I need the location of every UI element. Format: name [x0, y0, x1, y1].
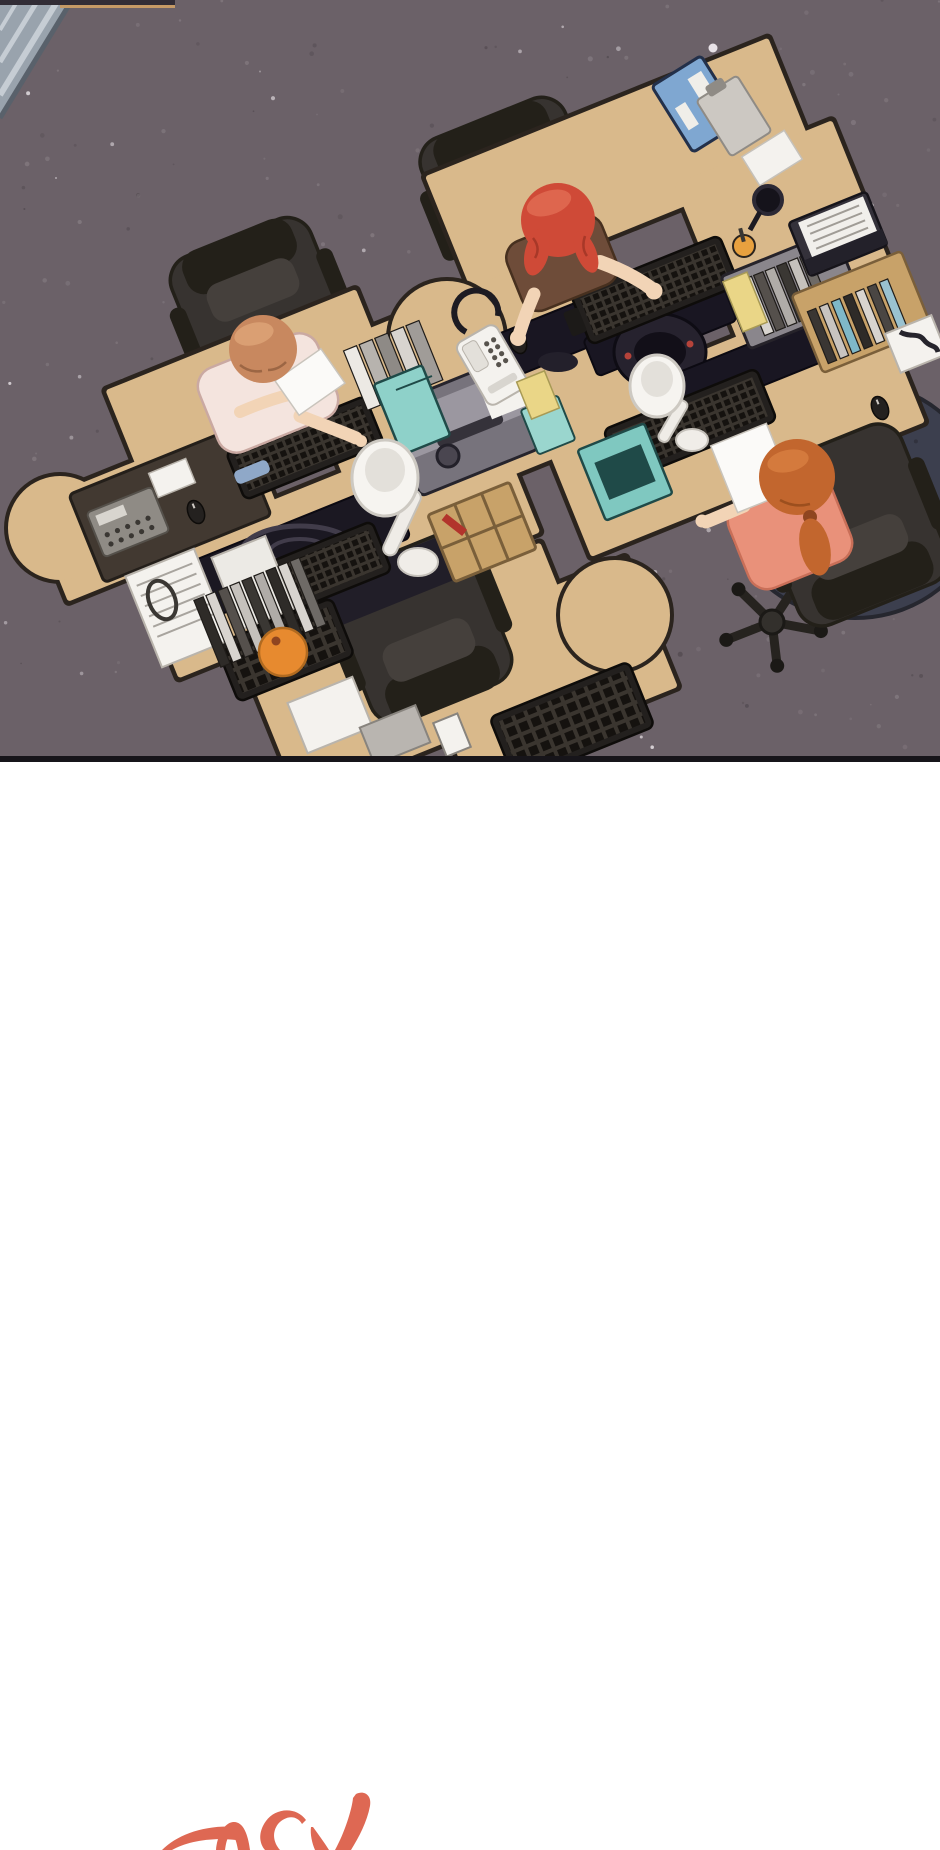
webtoon-page [0, 0, 940, 1850]
auburn-hair [229, 315, 297, 383]
office-panel-illustration [0, 0, 940, 762]
wall-edge [0, 0, 175, 5]
blank-gutter [0, 762, 940, 1786]
orange-fruit [259, 628, 307, 676]
partial-lettering [158, 1790, 398, 1850]
dust-speck [709, 44, 718, 53]
